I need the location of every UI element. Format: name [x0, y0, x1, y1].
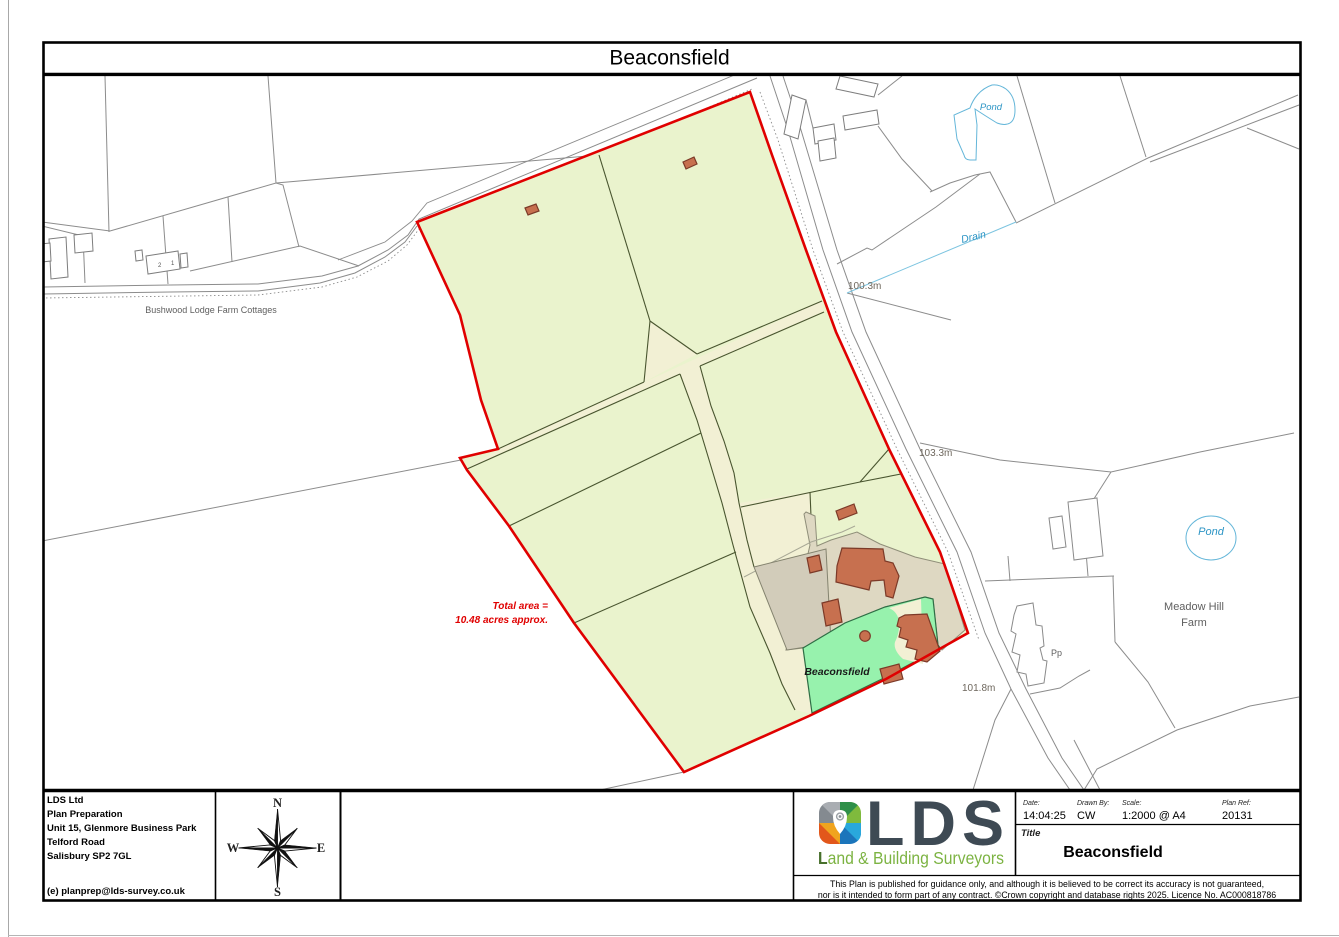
svg-text:Plan Ref:: Plan Ref: [1222, 800, 1251, 807]
svg-text:Total area =: Total area = [493, 601, 549, 612]
svg-text:Beaconsfield: Beaconsfield [1063, 844, 1163, 861]
svg-text:E: E [317, 841, 325, 855]
svg-text:Salisbury SP2 7GL: Salisbury SP2 7GL [47, 851, 132, 862]
svg-text:14:04:25: 14:04:25 [1023, 810, 1066, 822]
svg-text:100.3m: 100.3m [848, 281, 881, 292]
svg-text:(e) planprep@lds-survey.co.uk: (e) planprep@lds-survey.co.uk [47, 886, 186, 897]
svg-text:Pond: Pond [980, 102, 1003, 113]
svg-text:1:2000 @ A4: 1:2000 @ A4 [1122, 810, 1186, 822]
svg-text:10.48 acres approx.: 10.48 acres approx. [455, 615, 548, 626]
svg-text:Beaconsfield: Beaconsfield [609, 47, 729, 70]
svg-text:nor is it intended to form par: nor is it intended to form part of any c… [818, 890, 1276, 900]
svg-text:Title: Title [1021, 828, 1041, 839]
svg-text:103.3m: 103.3m [919, 448, 952, 459]
svg-text:Meadow Hill: Meadow Hill [1164, 601, 1224, 613]
svg-text:Farm: Farm [1181, 617, 1207, 629]
svg-text:Plan Preparation: Plan Preparation [47, 809, 123, 820]
svg-text:Drawn By:: Drawn By: [1077, 800, 1109, 807]
svg-text:N: N [273, 796, 282, 810]
svg-text:Scale:: Scale: [1122, 800, 1142, 807]
svg-text:This Plan is published for gui: This Plan is published for guidance only… [830, 879, 1264, 889]
svg-text:20131: 20131 [1222, 810, 1253, 822]
svg-text:Unit 15, Glenmore Business Par: Unit 15, Glenmore Business Park [47, 823, 197, 834]
svg-text:LDS Ltd: LDS Ltd [47, 795, 84, 806]
svg-text:Pp: Pp [1051, 648, 1062, 658]
svg-text:Telford Road: Telford Road [47, 837, 105, 848]
svg-text:W: W [227, 841, 240, 855]
svg-text:Land & Building Surveyors: Land & Building Surveyors [818, 848, 1004, 868]
svg-text:S: S [274, 885, 281, 899]
svg-text:101.8m: 101.8m [962, 683, 995, 694]
svg-text:Pond: Pond [1198, 526, 1225, 538]
svg-text:Date:: Date: [1023, 800, 1040, 807]
svg-text:Bushwood Lodge Farm Cottages: Bushwood Lodge Farm Cottages [145, 305, 277, 315]
svg-text:CW: CW [1077, 810, 1096, 822]
svg-text:Beaconsfield: Beaconsfield [804, 666, 870, 678]
